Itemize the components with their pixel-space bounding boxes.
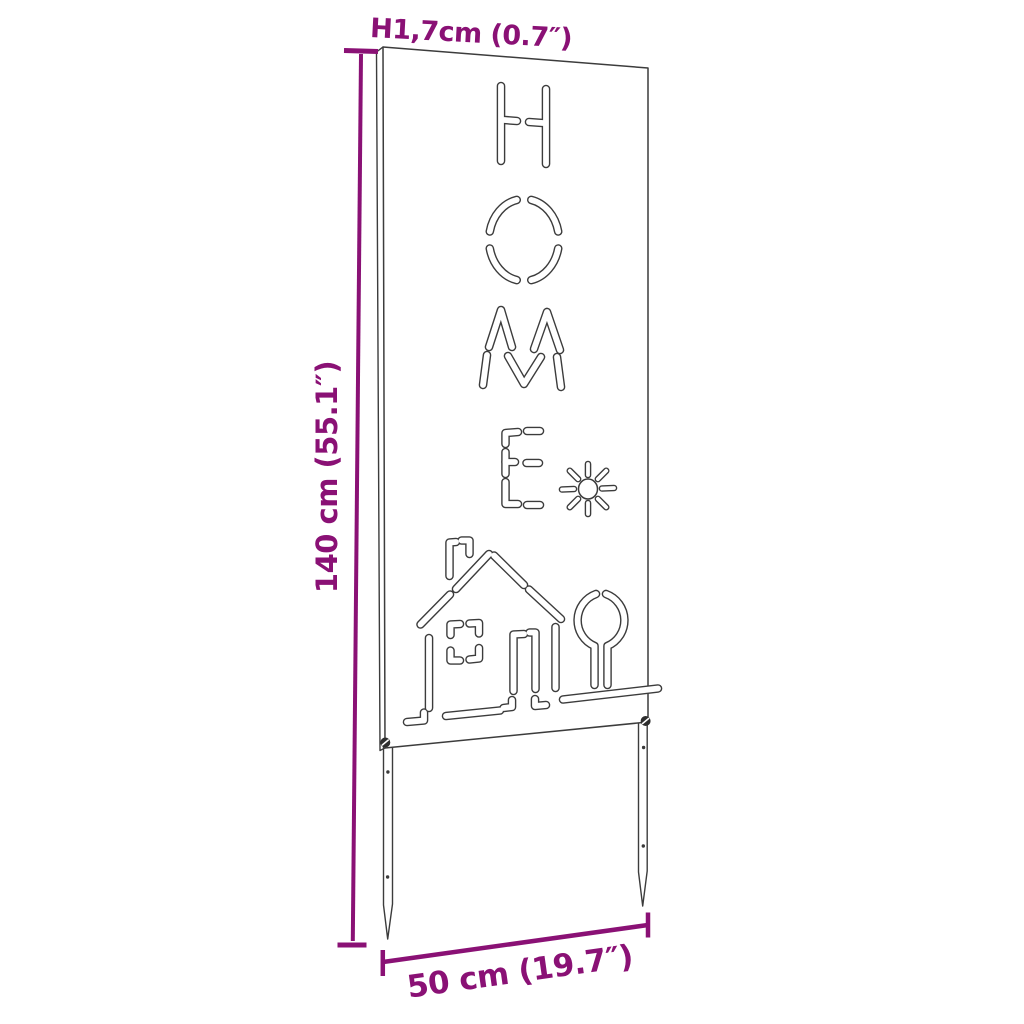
ground-stakes: [384, 719, 648, 939]
height-dimension-label: 140 cm (55.1″): [310, 361, 344, 593]
diagram-canvas: [0, 0, 1024, 1024]
sun-icon: [579, 479, 598, 499]
product-dimension-diagram: 140 cm (55.1″) 50 cm (19.7″) H1,7cm (0.7…: [0, 0, 1024, 1024]
thickness-bracket-icon: H: [369, 13, 393, 45]
height-dimension-line: [353, 54, 361, 941]
